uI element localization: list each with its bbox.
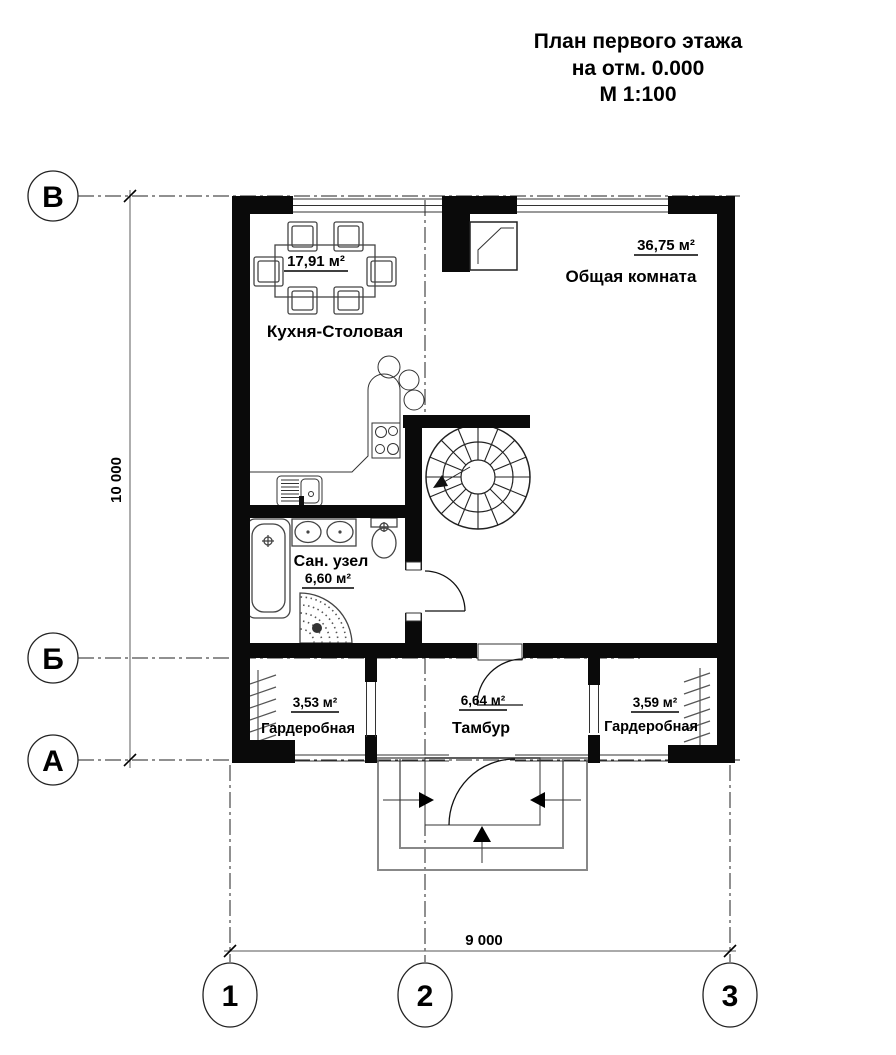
grid-row-mid-label: Б <box>42 643 64 676</box>
bathtub-symbol <box>247 519 290 618</box>
kitchen-name-label: Кухня-Столовая <box>267 322 403 341</box>
title-line-3: М 1:100 <box>599 83 676 106</box>
wardrobe-right-name-label: Гардеробная <box>604 719 698 735</box>
grid-col-mid-label: 2 <box>417 980 434 1013</box>
entrance-direction-arrows <box>383 792 581 863</box>
dimension-width-label: 9 000 <box>465 932 503 949</box>
living-name-label: Общая комната <box>566 267 697 286</box>
spiral-staircase-symbol <box>426 425 530 529</box>
kitchen-counter-symbol <box>250 356 424 472</box>
floor-plan-page: 10 000 9 000 В Б А 1 2 3 17,91 м² Кухня-… <box>0 0 896 1050</box>
wardrobe-left-name-label: Гардеробная <box>261 721 355 737</box>
shower-symbol <box>300 593 352 643</box>
bathroom-area-label: 6,60 м² <box>305 570 351 586</box>
wardrobe-right-area-label: 3,59 м² <box>633 695 678 710</box>
tambour-name-label: Тамбур <box>452 720 510 737</box>
grid-bubbles: В Б А 1 2 3 <box>28 171 757 1027</box>
arrow-right-icon <box>419 792 434 808</box>
shower-drain-icon <box>312 623 322 633</box>
title-block: План первого этажа на отм. 0.000 М 1:100 <box>534 30 743 106</box>
dimension-vertical: 10 000 <box>108 190 136 768</box>
grid-col-left-label: 1 <box>222 980 239 1013</box>
arrow-left-icon <box>530 792 545 808</box>
tambour-area-label: 6,64 м² <box>461 693 506 708</box>
wardrobe-left-area-label: 3,53 м² <box>293 695 338 710</box>
bathroom-name-label: Сан. узел <box>294 553 369 570</box>
double-sink-symbol <box>292 519 356 546</box>
floor-plan-canvas: 10 000 9 000 В Б А 1 2 3 17,91 м² Кухня-… <box>0 0 896 1050</box>
dimension-horizontal: 9 000 <box>224 932 736 957</box>
toilet-symbol <box>371 518 397 558</box>
dimension-height-label: 10 000 <box>108 457 125 503</box>
kitchen-area-label: 17,91 м² <box>287 253 345 270</box>
stove-symbol <box>372 423 400 458</box>
kitchen-sink-symbol <box>277 476 322 507</box>
grid-col-right-label: 3 <box>722 980 739 1013</box>
arrow-up-icon <box>473 826 491 842</box>
grid-row-top-label: В <box>42 181 64 214</box>
fireplace-symbol <box>470 222 517 270</box>
title-line-1: План первого этажа <box>534 30 743 53</box>
coat-rack-right-symbol <box>684 668 710 748</box>
title-line-2: на отм. 0.000 <box>572 57 705 80</box>
living-area-label: 36,75 м² <box>637 237 695 254</box>
grid-row-bottom-label: А <box>42 745 64 778</box>
